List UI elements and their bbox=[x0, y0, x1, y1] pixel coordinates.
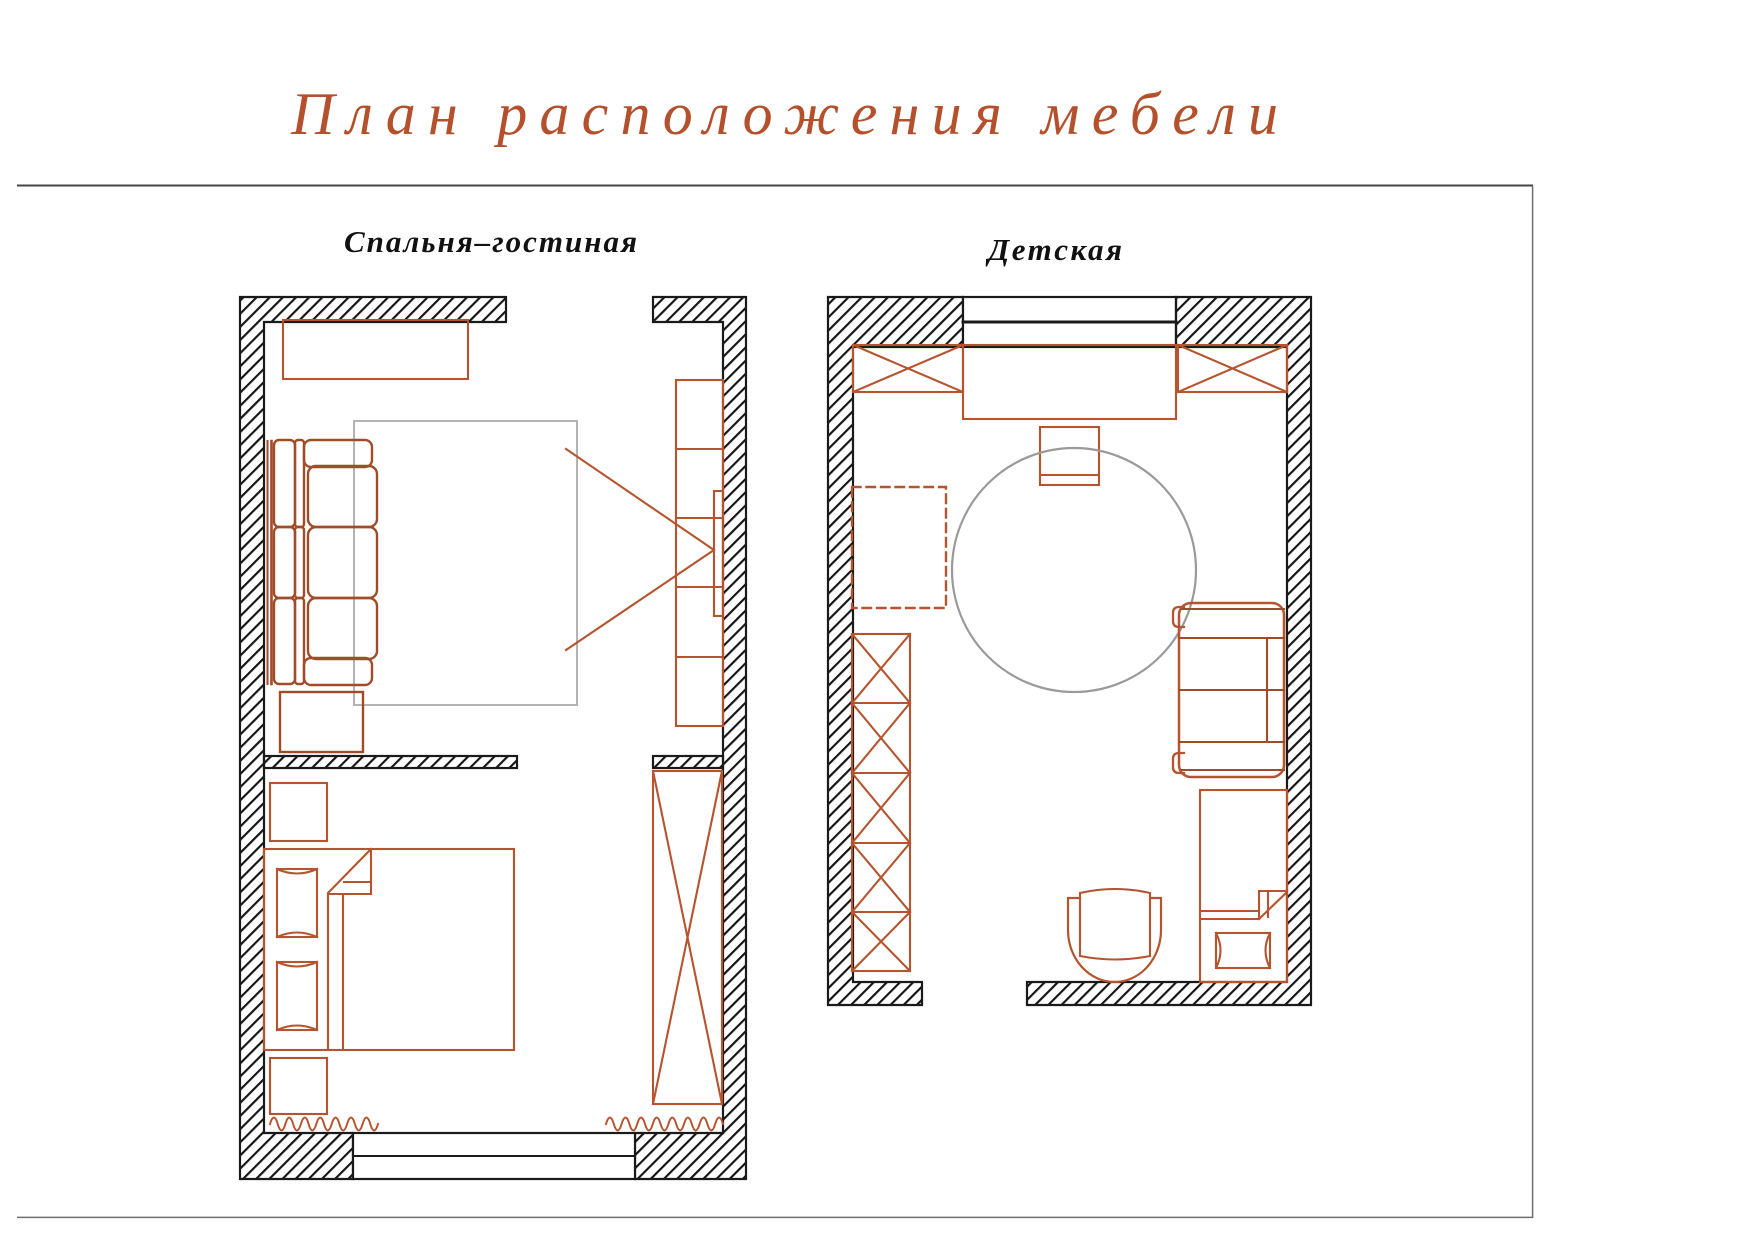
svg-text:План расположения мебели: План расположения мебели bbox=[290, 81, 1278, 147]
svg-text:Детская: Детская bbox=[985, 232, 1122, 267]
